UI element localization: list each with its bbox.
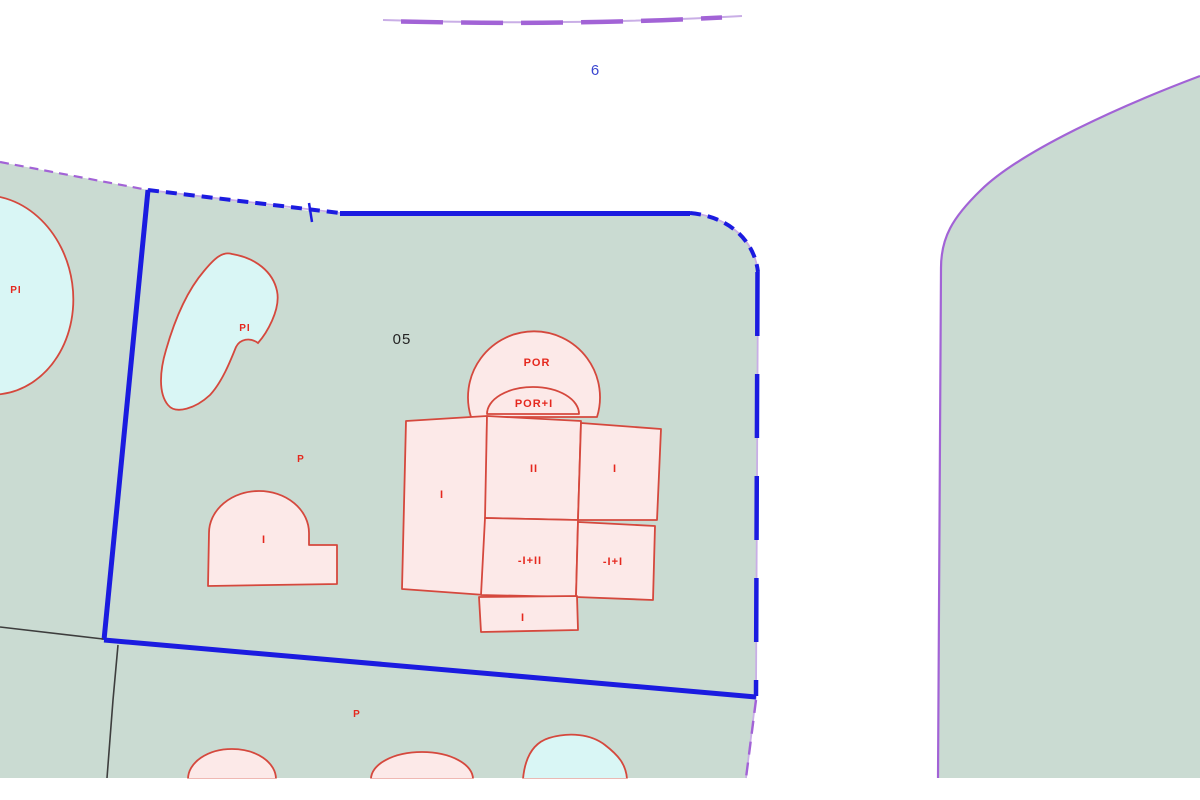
cadastral-map: 6 05 PI PI POR POR+I I II I -I+II -I+I I… <box>0 0 1200 800</box>
pool-left-label: PI <box>10 285 21 296</box>
building-block-bottom[interactable] <box>479 596 578 632</box>
map-bottom-margin <box>0 779 1200 800</box>
block-bottom-label: I <box>521 612 525 624</box>
wing-left-label: I <box>440 489 444 501</box>
basement-right-label: -I+I <box>603 556 623 568</box>
patio-upper-label: P <box>297 454 305 465</box>
basement-center-label: -I+II <box>518 555 542 567</box>
block-right-label: I <box>613 463 617 475</box>
block-center-label: II <box>530 463 538 475</box>
parcel05-east-dashed-segment <box>756 272 758 696</box>
patio-lower-label: P <box>353 709 361 720</box>
building-wing-left[interactable] <box>402 416 487 595</box>
pool-garden-label: PI <box>239 323 250 334</box>
building-block-right[interactable] <box>578 423 661 520</box>
annex-label: I <box>262 534 266 546</box>
porch-label: POR <box>524 357 551 369</box>
road-number-label: 6 <box>591 62 599 79</box>
parcel-number-label: 05 <box>393 331 412 348</box>
porch-plus-label: POR+I <box>515 398 553 410</box>
